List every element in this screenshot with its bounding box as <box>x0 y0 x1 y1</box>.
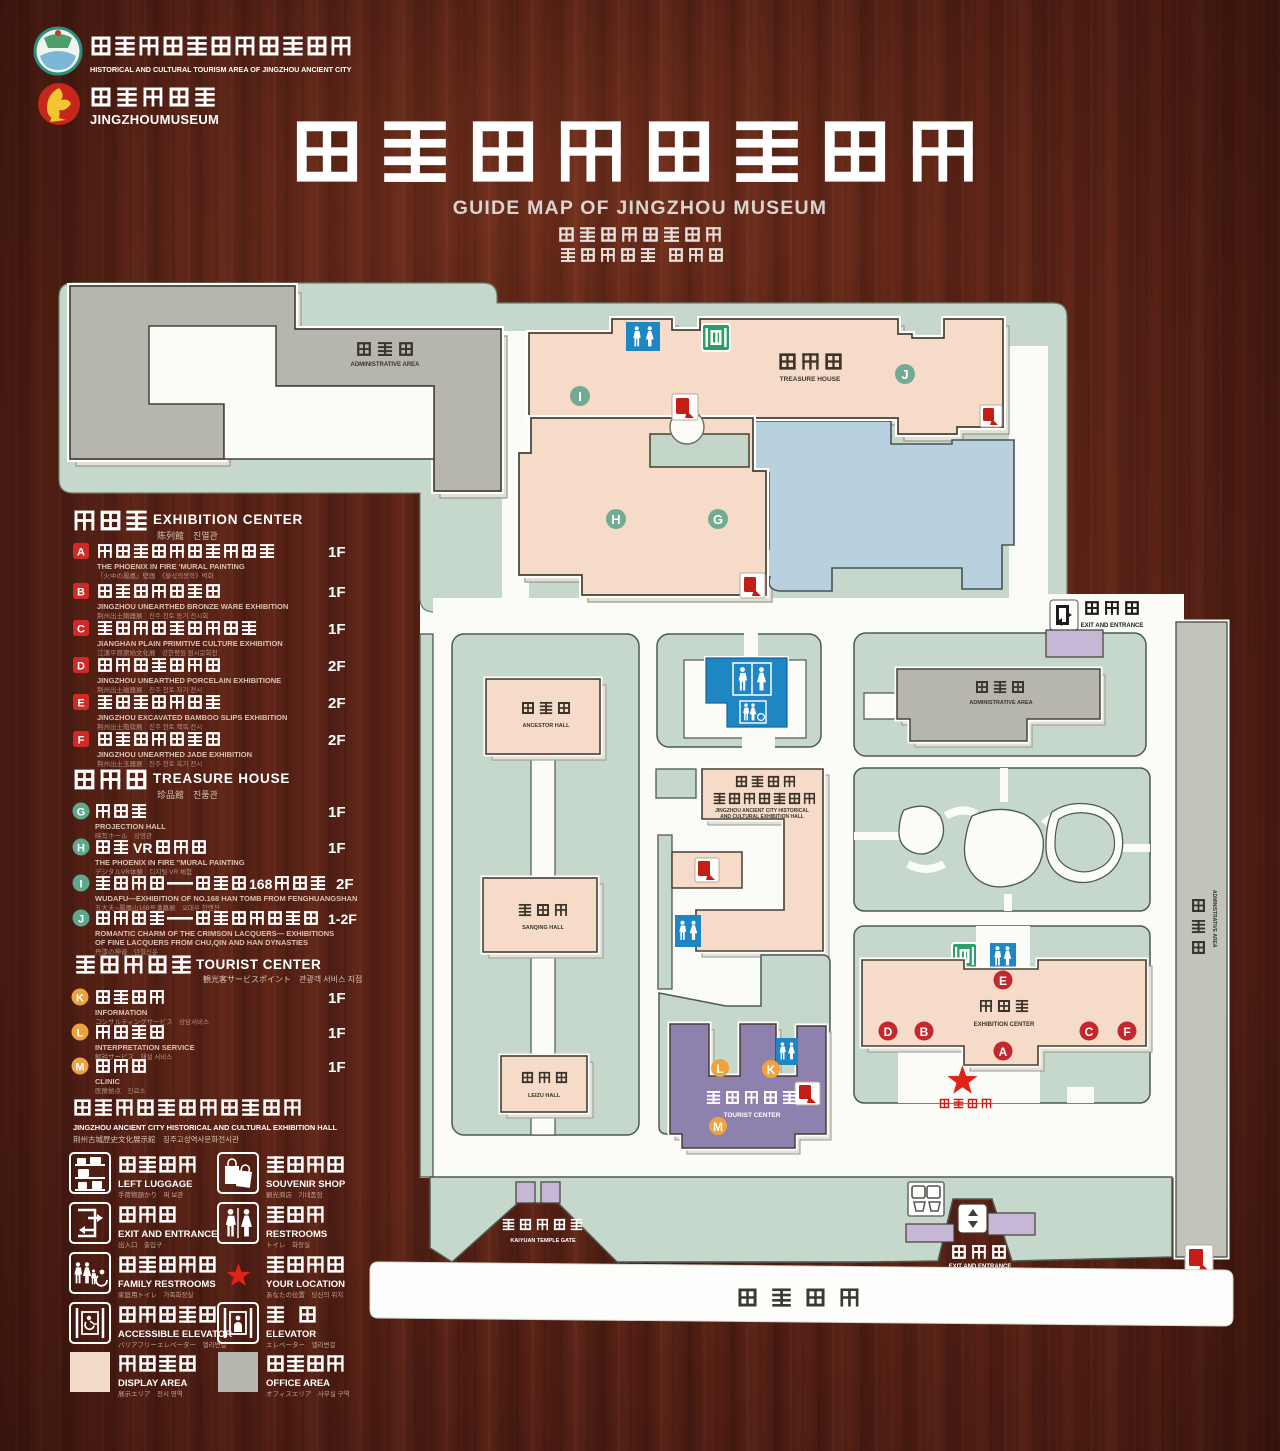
svg-text:JINGZHOU UNEARTHED PORCELAIN E: JINGZHOU UNEARTHED PORCELAIN EXHIBITIONE <box>97 676 281 685</box>
svg-text:THE PHOENIX IN FIRE "MURAL PAI: THE PHOENIX IN FIRE "MURAL PAINTING <box>95 858 245 867</box>
svg-text:TREASURE HOUSE: TREASURE HOUSE <box>153 771 290 786</box>
svg-text:INFORMATION: INFORMATION <box>95 1008 147 1017</box>
svg-text:JINGZHOU UNEARTHED BRONZE WARE: JINGZHOU UNEARTHED BRONZE WARE EXHIBITIO… <box>97 602 288 611</box>
svg-text:2F: 2F <box>336 876 354 893</box>
svg-text:KAIYUAN TEMPLE GATE: KAIYUAN TEMPLE GATE <box>510 1238 576 1244</box>
svg-text:EXHIBITION CENTER: EXHIBITION CENTER <box>974 1022 1035 1028</box>
svg-text:荆州出土磁器展 진주 천토 자기 전시: 荆州出土磁器展 진주 천토 자기 전시 <box>97 685 202 694</box>
svg-text:A: A <box>77 547 85 559</box>
svg-text:デジタルVR体験 디지털 VR 체험: デジタルVR体験 디지털 VR 체험 <box>95 867 192 876</box>
svg-text:ROMANTIC CHARM OF THE CRIMSON: ROMANTIC CHARM OF THE CRIMSON LACQUERS— … <box>95 929 334 938</box>
svg-text:THE PHOENIX IN FIRE 'MURAL PAI: THE PHOENIX IN FIRE 'MURAL PAINTING <box>97 562 245 571</box>
svg-text:ADMINISTRATIVE AREA: ADMINISTRATIVE AREA <box>351 362 421 368</box>
svg-text:LEFT LUGGAGE: LEFT LUGGAGE <box>118 1179 192 1190</box>
svg-text:LEIZU HALL: LEIZU HALL <box>528 1093 561 1099</box>
svg-text:トイレ 화장실: トイレ 화장실 <box>266 1240 310 1249</box>
svg-text:GUIDE MAP OF JINGZHOU MUSEUM: GUIDE MAP OF JINGZHOU MUSEUM <box>453 197 828 219</box>
svg-text:OFFICE AREA: OFFICE AREA <box>266 1378 330 1389</box>
svg-text:1F: 1F <box>328 584 346 601</box>
svg-text:A: A <box>999 1045 1008 1059</box>
svg-text:荆州古城歴史文化展示館 징주고성역사문화전시관: 荆州古城歴史文化展示館 징주고성역사문화전시관 <box>73 1134 239 1144</box>
svg-text:B: B <box>77 587 85 599</box>
svg-text:C: C <box>1085 1025 1094 1039</box>
svg-text:D: D <box>884 1025 893 1039</box>
svg-text:ADMINISTRATIVE AREA: ADMINISTRATIVE AREA <box>1211 890 1217 948</box>
svg-text:RESTROOMS: RESTROOMS <box>266 1229 327 1240</box>
svg-text:I: I <box>79 879 82 891</box>
svg-text:荆州出土銅器展 진주 천토 동기 전시회: 荆州出土銅器展 진주 천토 동기 전시회 <box>97 611 208 620</box>
svg-text:ACCESSIBLE ELEVATOR: ACCESSIBLE ELEVATOR <box>118 1329 232 1340</box>
svg-text:丹漆の神音 던칠신운: 丹漆の神音 던칠신운 <box>95 947 158 956</box>
svg-text:K: K <box>76 993 84 1005</box>
svg-text:OF FINE LACQUERS FROM CHU,QIN: OF FINE LACQUERS FROM CHU,QIN AND HAN DY… <box>95 938 308 947</box>
svg-text:FAMILY RESTROOMS: FAMILY RESTROOMS <box>118 1279 216 1290</box>
svg-text:2F: 2F <box>328 695 346 712</box>
svg-text:VR: VR <box>133 840 152 856</box>
svg-text:CLINIC: CLINIC <box>95 1077 121 1086</box>
svg-text:バリアフリーエレベーター 엘리변걸: バリアフリーエレベーター 엘리변걸 <box>118 1340 226 1349</box>
svg-text:ELEVATOR: ELEVATOR <box>266 1329 316 1340</box>
svg-text:E: E <box>77 698 84 710</box>
svg-text:EXHIBITION CENTER: EXHIBITION CENTER <box>153 512 303 527</box>
svg-text:E: E <box>999 974 1007 988</box>
svg-text:F: F <box>78 735 85 747</box>
svg-text:J: J <box>901 367 908 382</box>
svg-text:五大夫─鳳凰山168号漢墓展 오대부 한맨전: 五大夫─鳳凰山168号漢墓展 오대부 한맨전 <box>95 903 220 912</box>
svg-text:G: G <box>713 512 723 527</box>
svg-text:手荷物頡かり 쩌 보관: 手荷物頡かり 쩌 보관 <box>118 1190 183 1199</box>
svg-text:JINGZHOU ANCIENT CITY HISTORIC: JINGZHOU ANCIENT CITY HISTORICAL AND CUL… <box>73 1123 337 1132</box>
svg-text:ANCESTOR HALL: ANCESTOR HALL <box>523 723 571 729</box>
svg-text:SOUVENIR SHOP: SOUVENIR SHOP <box>266 1179 346 1190</box>
svg-text:1F: 1F <box>328 840 346 857</box>
svg-text:医療拠点 진료소: 医療拠点 진료소 <box>95 1086 145 1095</box>
svg-text:K: K <box>767 1063 776 1077</box>
svg-text:L: L <box>716 1062 723 1076</box>
svg-text:HISTORICAL AND CULTURAL TOURIS: HISTORICAL AND CULTURAL TOURISM AREA OF … <box>90 65 352 74</box>
svg-text:PROJECTION HALL: PROJECTION HALL <box>95 822 166 831</box>
svg-text:TOURIST CENTER: TOURIST CENTER <box>196 957 321 972</box>
svg-text:エレベーター 엘리변걸: エレベーター 엘리변걸 <box>266 1340 335 1349</box>
svg-text:B: B <box>920 1025 929 1039</box>
svg-text:荆州出土玉器展 진주 천토 옥기 전시: 荆州出土玉器展 진주 천토 옥기 전시 <box>97 759 202 768</box>
svg-text:EXIT AND ENTRANCE: EXIT AND ENTRANCE <box>118 1229 217 1240</box>
svg-text:珍品館 진품관: 珍品館 진품관 <box>157 789 218 800</box>
svg-text:EXIT AND ENTRANCE: EXIT AND ENTRANCE <box>1081 623 1144 629</box>
svg-text:1F: 1F <box>328 544 346 561</box>
svg-text:家庭用トイレ 가족화장실: 家庭用トイレ 가족화장실 <box>118 1290 193 1299</box>
svg-text:「火中の鳳凰」壁画 《불섟의봉학》벽화: 「火中の鳳凰」壁画 《불섟의봉학》벽화 <box>97 571 214 580</box>
svg-text:G: G <box>77 807 86 819</box>
svg-text:オフィスエリア 사무실 구역: オフィスエリア 사무실 구역 <box>266 1389 350 1398</box>
svg-text:映写ホール 상영관: 映写ホール 상영관 <box>95 831 152 840</box>
svg-text:JINGZHOU UNEARTHED JADE EXHIBI: JINGZHOU UNEARTHED JADE EXHIBITION <box>97 750 252 759</box>
svg-text:TREASURE HOUSE: TREASURE HOUSE <box>780 376 841 383</box>
svg-text:荆州出土簡牍展 진주 천토 좩독 전시: 荆州出土簡牍展 진주 천토 좩독 전시 <box>97 722 202 731</box>
svg-text:コンサルティングサービス 상담서비스: コンサルティングサービス 상담서비스 <box>95 1017 209 1026</box>
svg-text:1F: 1F <box>328 1059 346 1076</box>
svg-text:あなたの位置 당신의 위치: あなたの位置 당신의 위치 <box>266 1290 343 1299</box>
svg-text:1-2F: 1-2F <box>328 911 357 927</box>
svg-text:YOUR LOCATION: YOUR LOCATION <box>266 1279 345 1290</box>
svg-text:H: H <box>77 843 85 855</box>
svg-text:JINGZHOU EXCAVATED BAMBOO SLIP: JINGZHOU EXCAVATED BAMBOO SLIPS EXHIBITI… <box>97 713 287 722</box>
svg-text:JIANGHAN PLAIN PRIMITIVE CULTU: JIANGHAN PLAIN PRIMITIVE CULTURE EXHIBIT… <box>97 639 283 648</box>
svg-text:TOURIST CENTER: TOURIST CENTER <box>724 1112 781 1119</box>
svg-text:M: M <box>713 1120 723 1134</box>
svg-text:ADMINISTRATIVE AREA: ADMINISTRATIVE AREA <box>969 700 1032 706</box>
svg-text:168: 168 <box>249 876 273 892</box>
svg-text:J: J <box>78 914 84 926</box>
svg-text:陈列館 진열관: 陈列館 진열관 <box>157 530 218 541</box>
svg-text:展示エリア 전시 영역: 展示エリア 전시 영역 <box>118 1389 183 1398</box>
svg-text:1F: 1F <box>328 1025 346 1042</box>
svg-text:D: D <box>77 661 85 673</box>
svg-text:M: M <box>75 1062 84 1074</box>
svg-text:JINGZHOUMUSEUM: JINGZHOUMUSEUM <box>90 112 219 127</box>
svg-text:WUDAFU—EXHIBITION OF NO.168 HA: WUDAFU—EXHIBITION OF NO.168 HAN TOMB FRO… <box>95 894 357 903</box>
svg-text:出入口 출입구: 出入口 출입구 <box>118 1240 162 1249</box>
svg-text:DISPLAY AREA: DISPLAY AREA <box>118 1378 187 1389</box>
svg-text:2F: 2F <box>328 658 346 675</box>
svg-text:C: C <box>77 624 85 636</box>
svg-text:H: H <box>611 512 620 527</box>
svg-text:I: I <box>578 389 582 404</box>
svg-text:1F: 1F <box>328 804 346 821</box>
svg-text:INTERPRETATION SERVICE: INTERPRETATION SERVICE <box>95 1043 195 1052</box>
svg-text:観光客サービスポイント 관광객 서비스 지점: 観光客サービスポイント 관광객 서비스 지점 <box>203 974 362 984</box>
svg-text:観光商店 기네품점: 観光商店 기네품점 <box>266 1190 322 1199</box>
svg-text:L: L <box>77 1028 84 1040</box>
svg-text:1F: 1F <box>328 990 346 1007</box>
svg-text:AND CULTURAL EXHIBITION HALL: AND CULTURAL EXHIBITION HALL <box>720 814 804 820</box>
svg-text:2F: 2F <box>328 732 346 749</box>
svg-text:F: F <box>1123 1025 1130 1039</box>
svg-text:江漢平原原始文化展 강한평원 원시문화전: 江漢平原原始文化展 강한평원 원시문화전 <box>97 648 218 657</box>
svg-text:1F: 1F <box>328 621 346 638</box>
svg-text:SANQING HALL: SANQING HALL <box>522 925 565 931</box>
